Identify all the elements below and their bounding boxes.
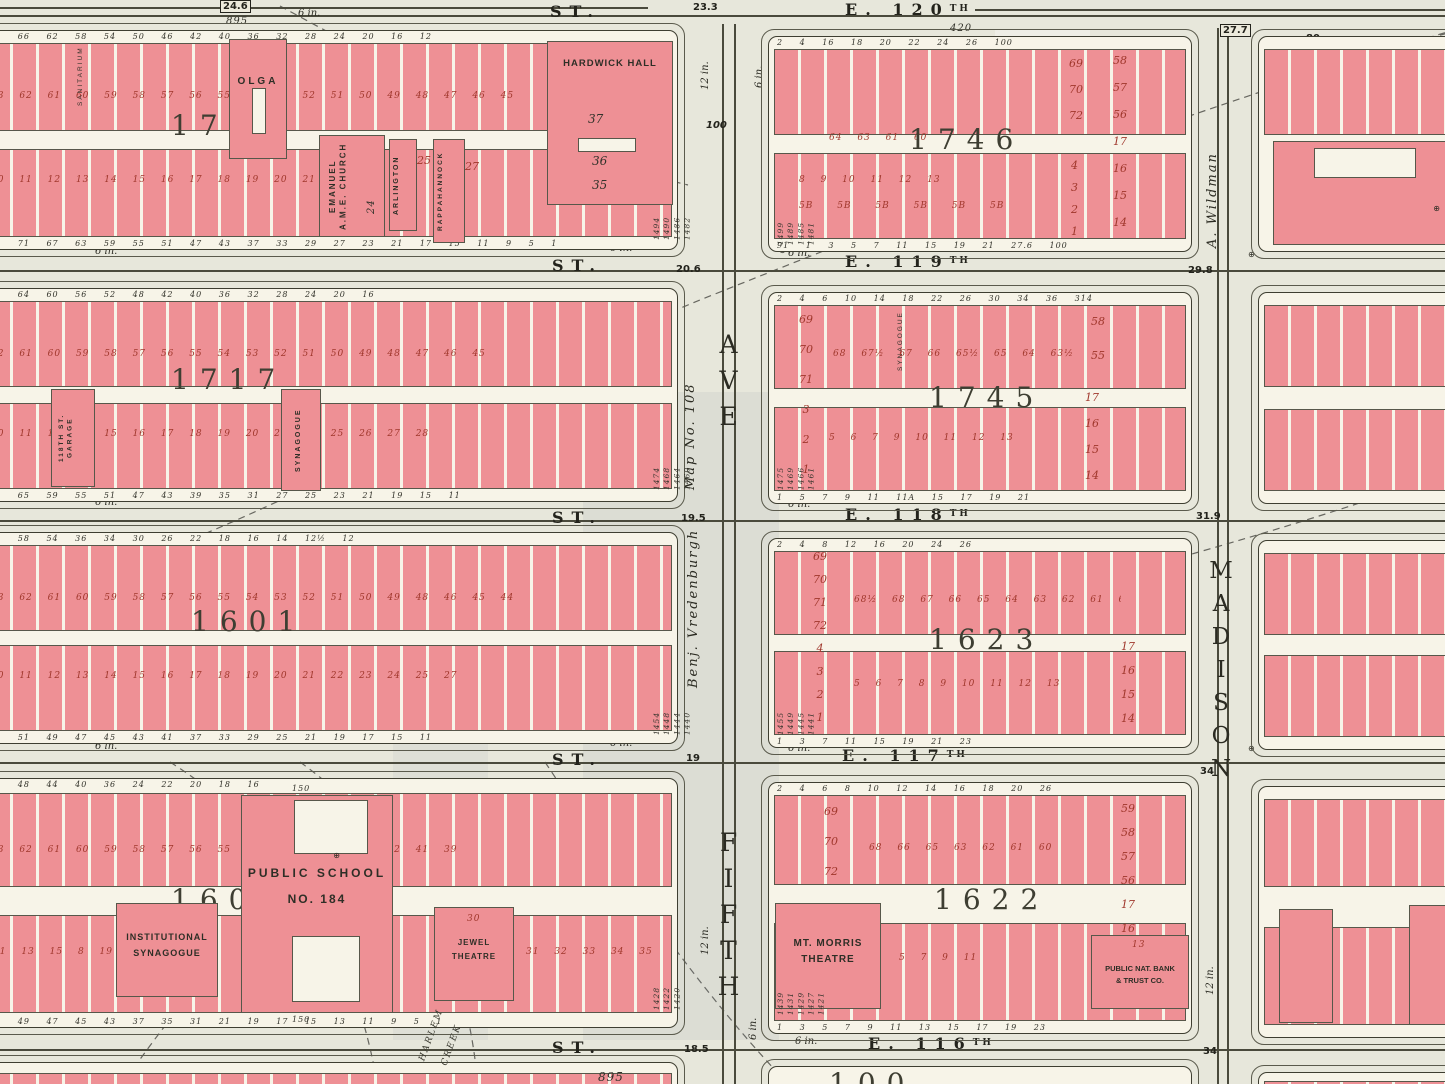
lot-widths: 91 1 3 5 7 11 15 19 21 27.6 100 — [777, 241, 1183, 250]
street-name-e117: E. 117TH — [842, 746, 968, 765]
lot-strip — [0, 545, 672, 631]
street-width-24-6: 24.6 — [220, 0, 251, 13]
lot-widths: 2 4 8 12 16 20 24 26 — [777, 540, 1183, 549]
block-public-school-103: ⊕ — [1258, 36, 1445, 252]
lot-numbers: 5 7 9 11 — [899, 953, 1049, 963]
block-number: 1622 — [934, 883, 1049, 916]
house-numbers-fifth: 1439 1431 1429 1427 1421 — [776, 800, 827, 1015]
block-1746: 2 4 16 18 20 22 24 26 100 69 70 72 4 3 2… — [768, 36, 1192, 252]
building-118th-st-garage: 118TH ST. GARAGE — [51, 389, 95, 487]
building-sanitarium: SANITARIUM — [77, 37, 85, 115]
block-east-117-116 — [1258, 786, 1445, 1038]
building-public-school-103: ⊕ — [1273, 141, 1445, 245]
building-laurel-garden — [1409, 905, 1445, 1025]
lot-widths: 1 5 7 9 11 11A 15 17 19 21 — [777, 493, 1183, 502]
lot-numbers: 10 11 12 13 14 15 16 17 18 19 20 21 22 2… — [0, 671, 617, 681]
lot-numbers: 5 6 7 9 10 11 12 13 — [829, 433, 1049, 443]
block-number: 1745 — [929, 381, 1044, 414]
block-partial-s: 100 — [768, 1066, 1192, 1084]
lot-numbers: 5 6 7 8 9 10 11 12 13 — [854, 679, 1094, 689]
school-courtyard — [294, 800, 368, 854]
building-st-bevan — [1279, 909, 1333, 1023]
lot-strip — [1264, 49, 1445, 135]
building-olga: OLGA — [229, 39, 287, 159]
block-1745: 2 4 6 10 14 18 22 26 30 34 36 314 69 70 … — [768, 292, 1192, 504]
street-width-31-9: 31.9 — [1196, 511, 1221, 522]
lot-numbers: 5B 5B 5B 5B 5B 5B — [799, 201, 1059, 211]
street-curb-line — [975, 9, 1445, 11]
lot-number: 35 — [592, 178, 607, 192]
lot-widths: 69 65 59 55 51 47 43 39 35 31 27 25 23 2… — [0, 491, 667, 500]
building-synagogue: SYNAGOGUE — [897, 309, 905, 373]
lot-widths: 1 3 5 7 9 11 13 15 17 19 23 — [777, 1023, 1183, 1032]
lot-strip — [1264, 655, 1445, 737]
street-width-23-3: 23.3 — [693, 2, 718, 13]
lot-widths: 68 64 60 56 52 48 42 40 36 32 28 24 20 1… — [0, 290, 667, 299]
pipe-size-label: 6 in. — [795, 1036, 817, 1047]
lot-number: 13 — [1132, 940, 1162, 950]
building-label: SYNAGOGUE — [294, 393, 303, 487]
street-width-19: 19 — [686, 753, 700, 764]
lot-numbers: 59 58 57 56 17 16 — [1121, 797, 1135, 941]
street-label-st-e118: ST. — [552, 508, 603, 527]
pipe-line-madison — [1227, 28, 1229, 1084]
lot-numbers: 11 13 15 8 19 20 — [0, 947, 113, 957]
fifth-avenue-label-ave: AVE — [714, 330, 743, 438]
benchmark-icon: ⊕ — [1248, 250, 1255, 259]
house-numbers-fifth: 1455 1449 1445 1441 — [776, 545, 817, 735]
building-rappahannock: RAPPAHANNOCK — [433, 139, 465, 243]
street-name-e116: E. 116TH — [868, 1034, 994, 1053]
lot-numbers: 69 70 72 — [1069, 51, 1083, 129]
dimension-420: 420 — [950, 23, 972, 34]
lot-numbers: 68 66 65 63 62 61 60 — [869, 843, 1101, 853]
house-numbers-fifth: 1499 1489 1485 1481 — [776, 60, 817, 245]
house-numbers-fifth: 1474 1468 1464 1460 — [652, 300, 693, 490]
street-name-e118: E. 118TH — [845, 505, 971, 524]
lot-strip — [1264, 305, 1445, 387]
street-width-29-8: 29.8 — [1188, 265, 1213, 276]
street-label-st-e119: ST. — [552, 256, 603, 275]
lot-numbers: 62 61 60 59 58 57 56 55 54 53 52 51 50 4… — [0, 349, 617, 359]
block-number: 1601 — [191, 605, 306, 638]
building-jewel-theatre: 30 JEWEL THEATRE — [434, 907, 514, 1001]
block-number-partial: 100 — [829, 1067, 915, 1084]
lot-strip — [0, 403, 672, 489]
lot-numbers: 4 3 2 1 — [1071, 155, 1078, 243]
harlem-creek-label: CREEK — [440, 1023, 464, 1067]
pipe-line-e120 — [0, 15, 1445, 17]
lot-number: 24 — [365, 160, 379, 214]
block-partial-sw — [0, 1062, 678, 1084]
lot-strip — [1264, 799, 1445, 887]
pipe-size-label: 12 in. — [1205, 966, 1216, 995]
lot-numbers: 58 57 56 17 16 15 14 — [1113, 47, 1127, 236]
lot-numbers: 68½ 68 67 66 65 64 63 62 61 60 59 58 56 — [854, 595, 1121, 605]
building-label: EMANUEL A.M.E. CHURCH — [328, 140, 349, 232]
lot-numbers: 58 55 — [1091, 305, 1105, 373]
lot-widths: 2 4 6 10 14 18 22 26 30 34 36 314 — [777, 294, 1183, 303]
block-number: 1623 — [929, 623, 1044, 656]
lot-number: 37 — [588, 112, 603, 126]
atlas-map: ST. E. 120TH 24.6 23.3 27.7 80 895 420 S… — [0, 0, 1445, 1084]
building-label: PUBLIC NAT. BANK — [1086, 964, 1194, 973]
lot-widths: 70 66 62 58 54 50 46 42 40 36 32 28 24 2… — [0, 32, 667, 41]
house-numbers-fifth: 1454 1448 1444 1440 — [652, 545, 693, 735]
lot-number: 30 — [467, 914, 497, 924]
building-emanuel-ame-church: EMANUEL A.M.E. CHURCH 24 — [319, 135, 385, 237]
building-label: 118TH ST. GARAGE — [58, 393, 75, 483]
lot-widths: 2 4 6 8 10 12 14 16 18 20 26 — [777, 784, 1183, 793]
building-institutional-synagogue: INSTITUTIONAL SYNAGOGUE — [116, 903, 218, 997]
building-label: NO. 184 — [242, 892, 392, 906]
street-width-27-7: 27.7 — [1220, 24, 1251, 37]
pipe-size-label: 6 in. — [298, 8, 320, 19]
lot-strip — [0, 645, 672, 731]
pipe-size-label: 12 in. — [700, 61, 711, 90]
street-name-e119: E. 119TH — [845, 252, 971, 271]
lot-number: 25 — [417, 149, 431, 173]
lot-widths: 75 71 67 63 59 55 51 47 43 37 33 29 27 2… — [0, 239, 667, 248]
building-label: & TRUST CO. — [1092, 976, 1188, 985]
school-courtyard — [292, 936, 360, 1002]
building-label: PUBLIC SCHOOL — [212, 866, 422, 880]
building-label: ARLINGTON — [392, 144, 401, 226]
lot-numbers: 17 16 15 14 — [1085, 385, 1099, 489]
building-label: THEATRE — [435, 952, 513, 961]
madison-avenue-label: MADISON — [1208, 558, 1234, 789]
lot-widths: 2 4 16 18 20 22 24 26 100 — [777, 38, 1183, 47]
street-label-st-e116: ST. — [552, 1038, 603, 1057]
block-1622: 2 4 6 8 10 12 14 16 18 20 26 69 70 72 68… — [768, 782, 1192, 1034]
lot-number: 27 — [465, 155, 479, 179]
avenue-width-100: 100 — [706, 120, 727, 131]
street-width-19-5: 19.5 — [681, 513, 706, 524]
light-court — [252, 88, 266, 134]
building-label: JEWEL — [435, 938, 513, 947]
block-number: 1746 — [909, 123, 1024, 156]
building-label: INSTITUTIONAL — [113, 932, 221, 942]
lot-number: 36 — [592, 154, 607, 168]
street-width-18-5: 18.5 — [684, 1044, 709, 1055]
pipe-size-label: 12 in. — [700, 926, 711, 955]
owner-a-wildman: A. Wildman — [1205, 118, 1220, 248]
pipe-size-label: 6 in. — [748, 1018, 759, 1040]
lot-widths: 62 58 54 36 34 30 26 22 18 16 14 12½ 12 — [0, 534, 667, 543]
building-public-school-184: PUBLIC SCHOOL NO. 184 ⊕ 150 150 — [241, 795, 393, 1013]
lot-widths: 53 51 49 47 45 43 41 37 33 29 25 21 19 1… — [0, 733, 667, 742]
lot-numbers: 68 67½ 67 66 65½ 65 64 63½ 63 62½ 62 61 … — [833, 349, 1081, 359]
benchmark-icon: ⊕ — [1433, 204, 1440, 213]
lot-numbers: 8 9 10 11 12 13 — [799, 175, 1059, 185]
house-numbers-fifth: 1494 1490 1486 1482 — [652, 55, 693, 240]
street-label-st-e117: ST. — [552, 750, 603, 769]
block-1717: 68 64 60 56 52 48 42 40 36 32 28 24 20 1… — [0, 288, 678, 502]
block-1623: 2 4 8 12 16 20 24 26 69 70 71 72 4 3 2 1… — [768, 538, 1192, 748]
lot-numbers: 17 16 15 14 — [1121, 635, 1135, 731]
lot-strip — [0, 301, 672, 387]
dimension-895: 895 — [226, 16, 248, 27]
building-label: RAPPAHANNOCK — [437, 142, 445, 240]
building-synagogue: SYNAGOGUE — [281, 389, 321, 491]
street-width-20-6: 20.6 — [676, 264, 701, 275]
lot-strip — [0, 1073, 672, 1084]
lot-strip — [1264, 553, 1445, 635]
benchmark-icon: ⊕ — [333, 851, 340, 860]
block-east-119-118 — [1258, 292, 1445, 504]
block-partial-se — [1258, 1072, 1445, 1084]
building-arlington: ARLINGTON — [389, 139, 417, 231]
lot-widths: 1 3 7 11 15 19 21 23 — [777, 737, 1183, 746]
school-wing — [1314, 148, 1416, 178]
dimension-895-bottom: 895 — [598, 1070, 624, 1084]
benchmark-icon: ⊕ — [1248, 744, 1255, 753]
lot-strip — [774, 305, 1186, 389]
lot-widths: 52 48 44 40 36 24 22 20 18 16 — [0, 780, 477, 789]
house-numbers-fifth: 1428 1422 1420 — [652, 800, 682, 1010]
light-court — [578, 138, 636, 152]
lot-strip — [774, 407, 1186, 491]
block-1600: 52 48 44 40 36 24 22 20 18 16 63 62 61 6… — [0, 778, 678, 1028]
lot-strip — [1264, 409, 1445, 491]
building-label: SYNAGOGUE — [117, 948, 217, 958]
block-number: 1717 — [171, 363, 286, 396]
building-label: OLGA — [230, 76, 286, 87]
lot-widths: 51 49 47 45 43 37 35 31 21 19 17 15 13 1… — [0, 1017, 667, 1026]
fifth-avenue-label-fifth: FIFTH — [714, 828, 743, 1008]
building-public-nat-bank: 13 PUBLIC NAT. BANK & TRUST CO. — [1091, 935, 1189, 1009]
block-1601: 62 58 54 36 34 30 26 22 18 16 14 12½ 12 … — [0, 532, 678, 744]
block-1718: 70 66 62 58 54 50 46 42 40 36 32 28 24 2… — [0, 30, 678, 250]
house-numbers-fifth: 1475 1469 1466 1461 — [776, 300, 817, 490]
lot-numbers: 63 62 61 60 59 58 57 56 55 54 53 52 51 5… — [0, 593, 617, 603]
street-width-34-b: 34 — [1203, 1046, 1217, 1057]
street-label-st-e120: ST. — [550, 2, 601, 21]
street-name-e120: E. 120TH — [845, 0, 971, 19]
pipe-size-label: 6 in. — [754, 66, 765, 88]
block-east-118-117 — [1258, 540, 1445, 750]
dimension-150: 150 — [292, 784, 310, 793]
lot-numbers: 31 32 33 34 35 — [526, 947, 656, 957]
